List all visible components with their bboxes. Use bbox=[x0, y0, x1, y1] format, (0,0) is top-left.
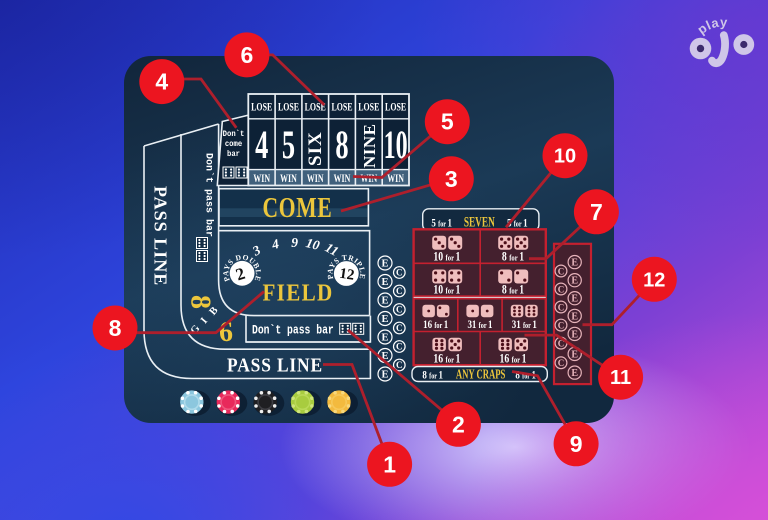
svg-text:LOSE: LOSE bbox=[358, 101, 379, 114]
svg-text:8 for 1: 8 for 1 bbox=[502, 284, 525, 297]
svg-text:WIN: WIN bbox=[387, 172, 404, 185]
svg-text:10 for 1: 10 for 1 bbox=[433, 284, 460, 297]
svg-text:7: 7 bbox=[590, 199, 603, 225]
svg-text:4: 4 bbox=[155, 69, 168, 95]
svg-text:8: 8 bbox=[109, 315, 122, 341]
svg-text:E: E bbox=[571, 294, 578, 305]
svg-text:C: C bbox=[396, 360, 403, 370]
svg-text:WIN: WIN bbox=[307, 172, 324, 185]
svg-text:C: C bbox=[396, 342, 403, 352]
svg-text:Don`t: Don`t bbox=[223, 130, 245, 140]
svg-text:5 for 1: 5 for 1 bbox=[431, 217, 452, 229]
svg-text:16 for 1: 16 for 1 bbox=[499, 352, 526, 365]
svg-text:10: 10 bbox=[384, 124, 408, 168]
svg-text:6: 6 bbox=[241, 42, 254, 68]
svg-text:C: C bbox=[558, 358, 565, 368]
svg-text:8: 8 bbox=[335, 124, 348, 168]
svg-text:NINE: NINE bbox=[360, 123, 379, 168]
svg-text:PASS LINE: PASS LINE bbox=[227, 354, 323, 377]
svg-text:C: C bbox=[396, 286, 403, 296]
svg-text:E: E bbox=[571, 258, 578, 269]
svg-text:WIN: WIN bbox=[334, 172, 351, 185]
svg-text:C: C bbox=[558, 302, 565, 312]
svg-text:PASS LINE: PASS LINE bbox=[151, 186, 171, 286]
svg-text:9: 9 bbox=[291, 235, 298, 250]
svg-text:LOSE: LOSE bbox=[385, 101, 406, 114]
svg-text:5: 5 bbox=[441, 109, 454, 135]
svg-text:E: E bbox=[381, 259, 388, 270]
svg-text:E: E bbox=[571, 311, 578, 322]
svg-text:E: E bbox=[571, 329, 578, 340]
svg-text:12: 12 bbox=[643, 269, 665, 291]
svg-text:bar: bar bbox=[227, 150, 240, 160]
svg-text:9: 9 bbox=[570, 431, 583, 457]
svg-text:31 for 1: 31 for 1 bbox=[512, 319, 537, 331]
svg-text:C: C bbox=[558, 284, 565, 294]
svg-text:FIELD: FIELD bbox=[262, 279, 333, 306]
svg-text:C: C bbox=[396, 323, 403, 333]
svg-text:E: E bbox=[381, 277, 388, 288]
svg-text:12: 12 bbox=[338, 266, 355, 284]
svg-text:ANY CRAPS: ANY CRAPS bbox=[456, 366, 505, 382]
svg-text:10 for 1: 10 for 1 bbox=[433, 250, 460, 263]
svg-text:8 for 1: 8 for 1 bbox=[422, 369, 443, 381]
svg-text:WIN: WIN bbox=[360, 172, 377, 185]
svg-text:3: 3 bbox=[445, 166, 458, 192]
svg-text:Don`t pass bar: Don`t pass bar bbox=[203, 153, 215, 237]
svg-text:E: E bbox=[571, 276, 578, 287]
svg-text:4: 4 bbox=[255, 124, 268, 168]
svg-text:8 for 1: 8 for 1 bbox=[502, 250, 525, 263]
svg-text:11: 11 bbox=[610, 367, 631, 389]
svg-text:E: E bbox=[381, 333, 388, 344]
svg-text:SEVEN: SEVEN bbox=[464, 213, 495, 230]
svg-text:31 for 1: 31 for 1 bbox=[467, 319, 492, 331]
svg-text:LOSE: LOSE bbox=[278, 101, 299, 114]
svg-text:2: 2 bbox=[452, 411, 465, 437]
svg-text:LOSE: LOSE bbox=[251, 101, 272, 114]
svg-text:SIX: SIX bbox=[305, 131, 326, 166]
svg-text:E: E bbox=[381, 370, 388, 381]
svg-text:WIN: WIN bbox=[280, 172, 297, 185]
svg-text:C: C bbox=[558, 266, 565, 276]
svg-text:C: C bbox=[396, 305, 403, 315]
svg-text:16 for 1: 16 for 1 bbox=[433, 352, 460, 365]
svg-text:Don`t pass bar: Don`t pass bar bbox=[252, 325, 334, 338]
svg-text:1: 1 bbox=[383, 451, 396, 477]
svg-text:5: 5 bbox=[282, 124, 295, 168]
svg-text:LOSE: LOSE bbox=[331, 101, 352, 114]
svg-text:WIN: WIN bbox=[253, 172, 270, 185]
svg-text:16 for 1: 16 for 1 bbox=[423, 319, 448, 331]
svg-text:come: come bbox=[225, 140, 243, 150]
svg-text:C: C bbox=[558, 320, 565, 330]
svg-text:E: E bbox=[571, 368, 578, 379]
svg-text:E: E bbox=[381, 314, 388, 325]
svg-text:COME: COME bbox=[262, 193, 332, 223]
svg-text:E: E bbox=[381, 296, 388, 307]
svg-text:E: E bbox=[571, 349, 578, 360]
svg-text:C: C bbox=[396, 268, 403, 278]
svg-text:10: 10 bbox=[554, 146, 576, 168]
